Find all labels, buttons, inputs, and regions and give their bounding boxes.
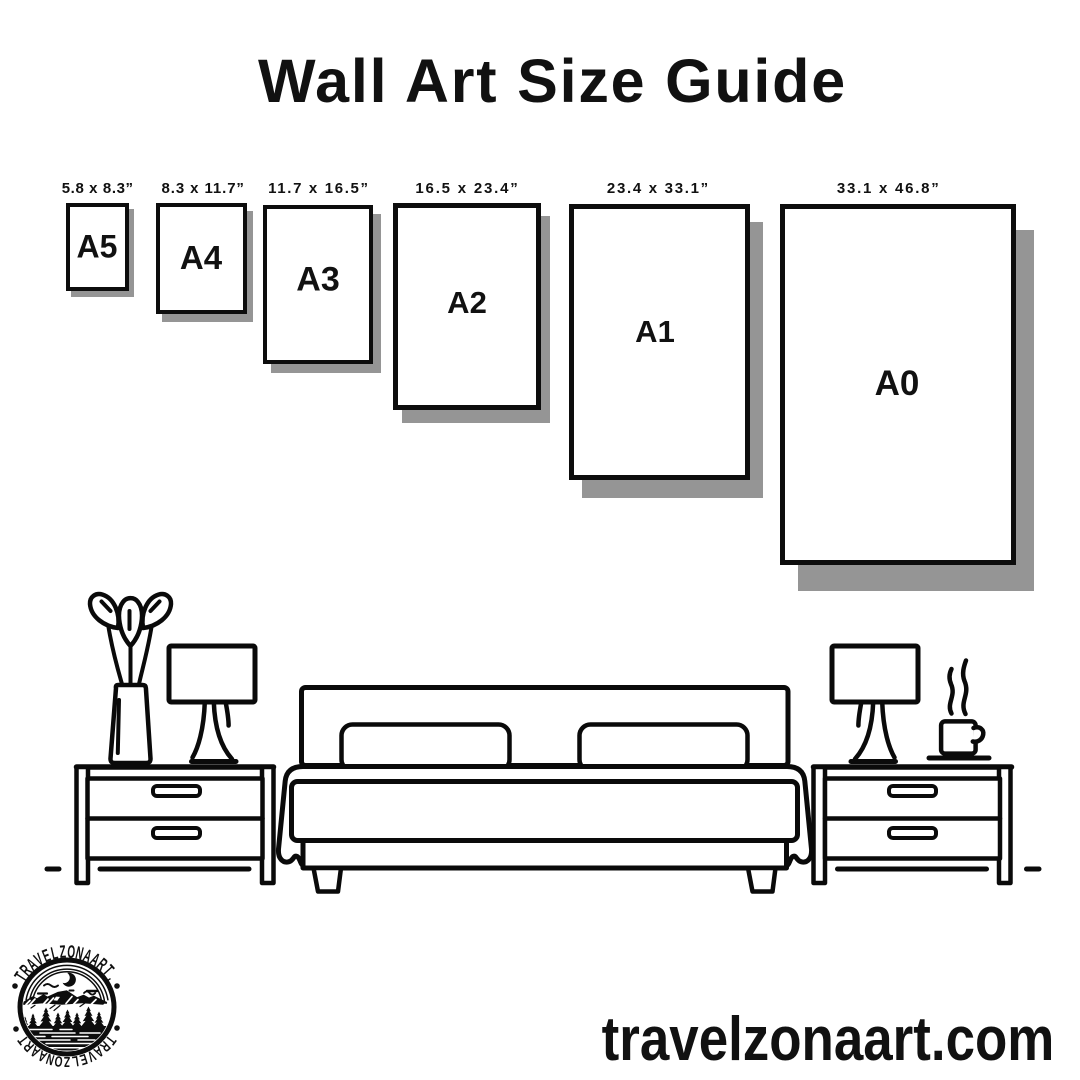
svg-text:L: L [71,1052,80,1070]
svg-text:Z: Z [64,1053,70,1071]
svg-text:Z: Z [59,943,67,963]
